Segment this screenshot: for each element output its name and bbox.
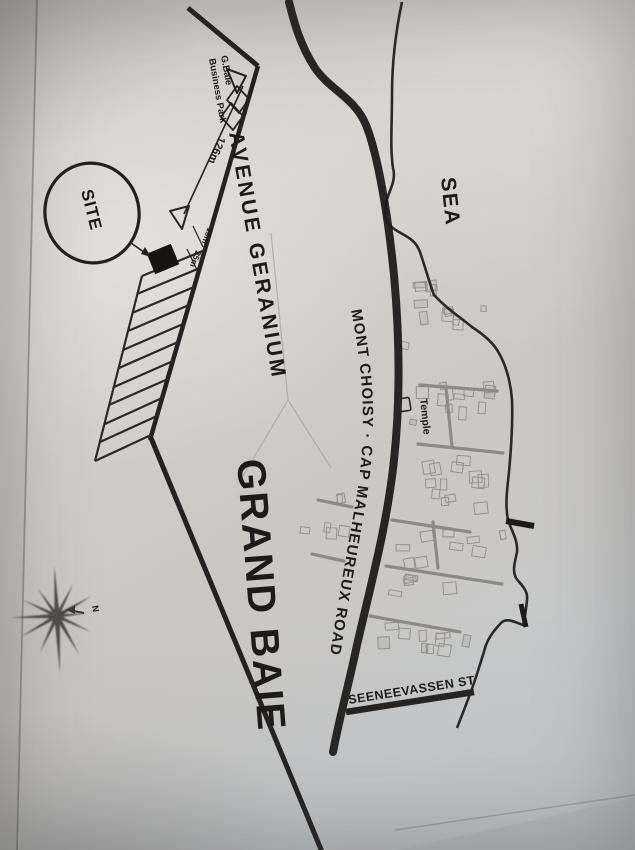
building-footprint [414,556,428,568]
north-arrow [66,606,84,615]
building-footprint [300,527,310,534]
building-footprint [326,528,337,540]
north-label: N [90,605,101,613]
temple-label: Temple [417,398,433,435]
building-footprint [378,637,390,649]
building-footprint [458,407,466,420]
building-footprint [462,634,471,647]
plot-lines [95,250,205,461]
building-footprint [440,479,447,490]
site-plot-filled [147,244,179,274]
building-footprint [398,628,410,639]
building-footprint [396,545,410,551]
building-footprint [499,530,506,539]
building-footprint [478,474,489,487]
building-footprint [422,460,436,475]
building-footprint [419,630,427,641]
building-footprint [420,530,434,542]
site-arrow-icon [141,247,151,257]
frontage-dimension-label: 126m [205,135,227,166]
building-footprint [467,536,480,544]
paper-edges [0,0,635,850]
building-footprint [421,643,428,653]
building-footprint [413,282,426,288]
map-canvas: SITE G.Baie Business Park 126m 19m 25m A… [0,0,635,850]
building-footprint [451,462,464,474]
building-footprint [409,419,417,425]
building-footprint [419,311,428,325]
building-footprint [432,489,440,499]
building-footprint [436,632,450,639]
building-footprint [454,394,465,400]
pier-marks [506,521,534,627]
sea-label: SEA [436,176,464,227]
building-footprint [416,387,428,399]
coastline [385,2,527,728]
building-footprint [478,402,486,414]
building-footprint [443,582,457,595]
paper-margin-left [0,0,37,850]
building-footprint [481,306,486,312]
plot-width-dimension-label: 19m [200,226,216,246]
grand-baie-label: GRAND BAIE [228,457,293,733]
building-footprint [472,545,487,558]
building-footprint [445,494,456,503]
building-footprint [425,479,436,488]
building-footprints [300,280,506,657]
building-footprint [449,542,463,551]
building-footprint [474,502,489,515]
building-footprint [388,590,402,597]
site-label: SITE [77,187,106,232]
avenue-geranium-label: AVENUE GERANIUM [224,130,290,381]
building-footprint [385,622,399,630]
building-footprint [414,300,428,308]
map-photo: SITE G.Baie Business Park 126m 19m 25m A… [0,0,635,850]
